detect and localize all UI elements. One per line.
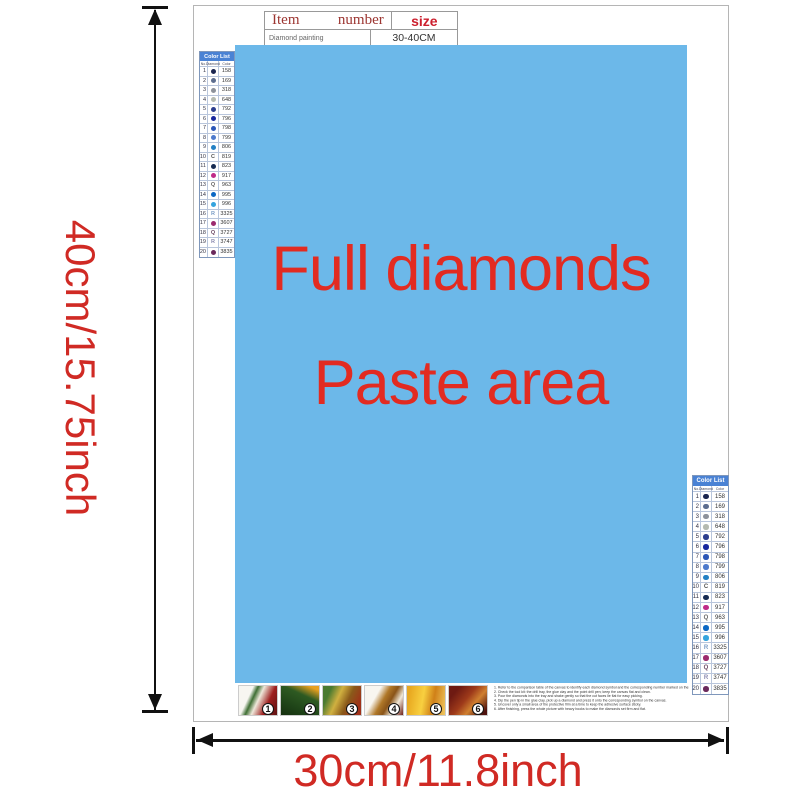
diamond-symbol-icon <box>208 134 219 143</box>
diamond-symbol-icon <box>208 200 219 209</box>
color-row-number: 3 <box>200 86 208 95</box>
dmc-color-code: 169 <box>712 504 728 510</box>
diamond-dot-icon <box>703 554 709 560</box>
color-list-row: 1158 <box>693 492 728 502</box>
diamond-symbol-icon <box>208 105 219 114</box>
step-image-2: 2 <box>280 685 320 716</box>
diamond-symbol-icon <box>701 522 712 531</box>
diamond-symbol-icon <box>208 248 219 258</box>
color-row-number: 7 <box>693 553 701 562</box>
color-list-row: 15996 <box>693 633 728 643</box>
color-row-number: 8 <box>200 134 208 143</box>
info-table-header-item-number: Item number <box>265 12 392 29</box>
diamond-symbol-icon <box>701 623 712 632</box>
color-list-right: Color List No. Diamond Color 11582169331… <box>692 475 729 695</box>
color-list-row: 10C819 <box>200 153 234 163</box>
arrow-up-icon <box>148 9 162 25</box>
color-row-number: 9 <box>200 143 208 152</box>
step-image-1: 1 <box>238 685 278 716</box>
dmc-color-code: 3607 <box>219 220 234 226</box>
color-row-number: 6 <box>693 542 701 551</box>
color-list-row: 15996 <box>200 200 234 210</box>
color-list-row: 173607 <box>200 219 234 229</box>
color-row-number: 20 <box>200 248 208 258</box>
diamond-symbol-icon <box>208 124 219 133</box>
step-image-4: 4 <box>364 685 404 716</box>
dmc-color-code: 823 <box>219 163 234 169</box>
color-row-number: 10 <box>200 153 208 162</box>
diamond-symbol-icon: C <box>701 583 712 592</box>
dmc-color-code: 648 <box>712 524 728 530</box>
height-dimension-label: 40cm/15.75inch <box>56 220 104 517</box>
step-number-badge: 5 <box>430 703 442 715</box>
color-row-number: 17 <box>200 219 208 228</box>
diamond-dot-icon <box>211 97 216 102</box>
color-list-row: 5792 <box>693 532 728 542</box>
dmc-color-code: 917 <box>712 605 728 611</box>
color-list-row: 7798 <box>200 124 234 134</box>
col-color-label: Color <box>712 486 728 491</box>
diamond-dot-icon <box>703 625 709 631</box>
color-row-number: 1 <box>200 67 208 76</box>
color-row-number: 19 <box>693 674 701 683</box>
diamond-symbol-icon <box>701 512 712 521</box>
diamond-dot-icon <box>703 595 709 601</box>
color-row-number: 2 <box>200 77 208 86</box>
diamond-dot-icon <box>211 192 216 197</box>
diamond-symbol-icon <box>208 77 219 86</box>
color-row-number: 19 <box>200 238 208 247</box>
color-row-number: 4 <box>200 96 208 105</box>
color-list-row: 19R3747 <box>200 238 234 248</box>
dmc-color-code: 799 <box>712 564 728 570</box>
horizontal-dimension-line <box>196 739 724 742</box>
color-list-row: 14995 <box>693 623 728 633</box>
full-diamond-paste-area: Full diamonds Paste area <box>235 45 687 683</box>
color-row-number: 18 <box>693 664 701 673</box>
color-row-number: 5 <box>200 105 208 114</box>
diamond-dot-icon <box>211 116 216 121</box>
color-list-row: 2169 <box>200 77 234 87</box>
diamond-symbol-icon <box>701 553 712 562</box>
diamond-symbol-icon: R <box>701 674 712 683</box>
arrow-down-icon <box>148 694 162 710</box>
dmc-color-code: 996 <box>219 201 234 207</box>
color-row-number: 6 <box>200 115 208 124</box>
diamond-dot-icon <box>703 575 709 581</box>
diamond-dot-icon <box>211 250 216 255</box>
diamond-dot-icon <box>211 88 216 93</box>
paste-area-text-line2: Paste area <box>235 347 687 419</box>
diamond-symbol-icon: Q <box>208 229 219 238</box>
diamond-symbol-icon: Q <box>701 613 712 622</box>
color-list-row: 6796 <box>200 115 234 125</box>
diamond-dot-icon <box>703 524 709 530</box>
color-list-row: 18Q3727 <box>693 664 728 674</box>
dmc-color-code: 3747 <box>219 239 234 245</box>
color-list-row: 9806 <box>693 573 728 583</box>
dmc-color-code: 796 <box>712 544 728 550</box>
diamond-symbol-icon <box>701 502 712 511</box>
color-list-title: Color List <box>200 52 234 61</box>
diamond-symbol-icon <box>208 143 219 152</box>
color-list-row: 8799 <box>200 134 234 144</box>
horizontal-dimension-left-cap <box>192 727 195 754</box>
diamond-dot-icon <box>703 514 709 520</box>
diamond-dot-icon <box>703 635 709 641</box>
dmc-color-code: 3325 <box>219 211 234 217</box>
header-number-label: number <box>338 12 384 29</box>
step-image-3: 3 <box>322 685 362 716</box>
color-row-number: 5 <box>693 532 701 541</box>
dmc-color-code: 648 <box>219 97 234 103</box>
diamond-dot-icon <box>703 605 709 611</box>
col-diamond-label: Diamond <box>208 61 219 66</box>
step-number-badge: 6 <box>472 703 484 715</box>
paste-area-text-line1: Full diamonds <box>235 233 687 305</box>
color-list-left: Color List No. Diamond Color 11582169331… <box>199 51 235 258</box>
info-table-header-row: Item number size <box>265 12 457 30</box>
dmc-color-code: 3727 <box>219 230 234 236</box>
color-list-row: 203835 <box>200 248 234 258</box>
color-row-number: 9 <box>693 573 701 582</box>
color-row-number: 4 <box>693 522 701 531</box>
instruction-step-thumbnails: 123456 <box>238 685 488 716</box>
color-row-number: 2 <box>693 502 701 511</box>
diamond-dot-icon <box>211 126 216 131</box>
diamond-symbol-icon <box>208 162 219 171</box>
color-row-number: 20 <box>693 684 701 694</box>
diamond-symbol-icon: R <box>208 238 219 247</box>
color-list-row: 16R3325 <box>693 643 728 653</box>
diamond-symbol-icon <box>208 115 219 124</box>
color-list-row: 10C819 <box>693 583 728 593</box>
color-row-number: 11 <box>693 593 701 602</box>
color-list-row: 13Q963 <box>200 181 234 191</box>
diamond-dot-icon <box>211 221 216 226</box>
dmc-color-code: 995 <box>219 192 234 198</box>
diamond-dot-icon <box>211 173 216 178</box>
diamond-dot-icon <box>703 544 709 550</box>
color-list-row: 1158 <box>200 67 234 77</box>
dmc-color-code: 792 <box>219 106 234 112</box>
color-list-rows: 11582169331846485792679677988799980610C8… <box>200 67 234 257</box>
color-row-number: 14 <box>200 191 208 200</box>
dmc-color-code: 3325 <box>712 645 728 651</box>
color-list-row: 203835 <box>693 684 728 694</box>
color-row-number: 13 <box>200 181 208 190</box>
color-list-row: 18Q3727 <box>200 229 234 239</box>
dmc-color-code: 158 <box>712 494 728 500</box>
color-list-row: 4648 <box>693 522 728 532</box>
diamond-symbol-icon <box>701 492 712 501</box>
color-list-row: 11823 <box>693 593 728 603</box>
size-value: 30-40CM <box>371 30 457 46</box>
color-row-number: 15 <box>693 633 701 642</box>
diamond-symbol-icon <box>701 654 712 663</box>
color-row-number: 15 <box>200 200 208 209</box>
color-list-row: 173607 <box>693 654 728 664</box>
color-row-number: 8 <box>693 563 701 572</box>
dmc-color-code: 806 <box>712 574 728 580</box>
color-list-row: 3318 <box>200 86 234 96</box>
step-image-5: 5 <box>406 685 446 716</box>
header-item-label: Item <box>272 12 300 29</box>
dmc-color-code: 318 <box>219 87 234 93</box>
color-list-rows: 11582169331846485792679677988799980610C8… <box>693 492 728 694</box>
diamond-symbol-icon <box>701 542 712 551</box>
canvas-sheet: Item number size Diamond painting 30-40C… <box>193 5 729 722</box>
color-row-number: 3 <box>693 512 701 521</box>
diamond-symbol-icon <box>701 593 712 602</box>
color-list-title: Color List <box>693 476 728 486</box>
dmc-color-code: 792 <box>712 534 728 540</box>
color-list-row: 11823 <box>200 162 234 172</box>
dmc-color-code: 796 <box>219 116 234 122</box>
dmc-color-code: 995 <box>712 625 728 631</box>
dmc-color-code: 3835 <box>219 249 234 255</box>
vertical-dimension-line <box>154 10 156 710</box>
dmc-color-code: 819 <box>219 154 234 160</box>
diamond-symbol-icon: R <box>701 643 712 652</box>
color-list-row: 13Q963 <box>693 613 728 623</box>
color-list-row: 7798 <box>693 553 728 563</box>
dmc-color-code: 158 <box>219 68 234 74</box>
color-row-number: 10 <box>693 583 701 592</box>
diamond-dot-icon <box>211 107 216 112</box>
dmc-color-code: 823 <box>712 594 728 600</box>
instruction-line: 6. After finishing, press the whole pict… <box>494 707 689 711</box>
color-row-number: 7 <box>200 124 208 133</box>
dmc-color-code: 3607 <box>712 655 728 661</box>
diamond-dot-icon <box>211 135 216 140</box>
diamond-dot-icon <box>211 78 216 83</box>
dmc-color-code: 996 <box>712 635 728 641</box>
color-row-number: 18 <box>200 229 208 238</box>
diamond-symbol-icon: Q <box>208 181 219 190</box>
step-number-badge: 3 <box>346 703 358 715</box>
step-number-badge: 1 <box>262 703 274 715</box>
diamond-symbol-icon <box>701 573 712 582</box>
color-row-number: 1 <box>693 492 701 501</box>
dmc-color-code: 169 <box>219 78 234 84</box>
instruction-text-block: 1. Refer to the comparison table of the … <box>494 686 689 712</box>
width-dimension-label: 30cm/11.8inch <box>293 745 582 797</box>
diamond-dot-icon <box>703 504 709 510</box>
dmc-color-code: 963 <box>219 182 234 188</box>
color-row-number: 17 <box>693 654 701 663</box>
color-list-row: 4648 <box>200 96 234 106</box>
color-list-row: 9806 <box>200 143 234 153</box>
diamond-symbol-icon <box>208 67 219 76</box>
vertical-dimension-bottom-cap <box>142 710 168 713</box>
color-row-number: 16 <box>693 643 701 652</box>
diamond-symbol-icon <box>701 633 712 642</box>
diamond-symbol-icon <box>701 603 712 612</box>
diamond-symbol-icon <box>208 86 219 95</box>
diamond-dot-icon <box>703 564 709 570</box>
color-row-number: 12 <box>693 603 701 612</box>
color-list-row: 19R3747 <box>693 674 728 684</box>
color-list-row: 5792 <box>200 105 234 115</box>
step-number-badge: 4 <box>388 703 400 715</box>
diamond-symbol-icon <box>701 684 712 694</box>
diamond-symbol-icon <box>208 219 219 228</box>
diamond-symbol-icon <box>701 563 712 572</box>
color-list-row: 6796 <box>693 542 728 552</box>
dmc-color-code: 917 <box>219 173 234 179</box>
color-row-number: 14 <box>693 623 701 632</box>
diamond-symbol-icon: R <box>208 210 219 219</box>
color-list-row: 3318 <box>693 512 728 522</box>
color-list-row: 14995 <box>200 191 234 201</box>
diamond-symbol-icon: Q <box>701 664 712 673</box>
diamond-symbol-icon: C <box>208 153 219 162</box>
dmc-color-code: 3835 <box>712 686 728 692</box>
color-row-number: 11 <box>200 162 208 171</box>
diamond-symbol-icon <box>208 96 219 105</box>
diamond-dot-icon <box>703 534 709 540</box>
dmc-color-code: 798 <box>219 125 234 131</box>
dmc-color-code: 3747 <box>712 675 728 681</box>
arrow-right-icon <box>708 733 724 747</box>
step-number-badge: 2 <box>304 703 316 715</box>
diamond-dot-icon <box>211 145 216 150</box>
diamond-symbol-icon <box>701 532 712 541</box>
info-table-data-row: Diamond painting 30-40CM <box>265 30 457 46</box>
header-size-label: size <box>392 12 457 29</box>
color-list-row: 12917 <box>200 172 234 182</box>
color-list-row: 8799 <box>693 563 728 573</box>
color-list-row: 12917 <box>693 603 728 613</box>
dmc-color-code: 963 <box>712 615 728 621</box>
dmc-color-code: 318 <box>712 514 728 520</box>
col-diamond-label: Diamond <box>701 486 712 491</box>
item-info-table: Item number size Diamond painting 30-40C… <box>264 11 458 47</box>
diamond-dot-icon <box>703 686 709 692</box>
color-list-row: 2169 <box>693 502 728 512</box>
dmc-color-code: 806 <box>219 144 234 150</box>
col-color-label: Color <box>219 61 234 66</box>
dmc-color-code: 798 <box>712 554 728 560</box>
color-list-row: 16R3325 <box>200 210 234 220</box>
diamond-symbol-icon <box>208 172 219 181</box>
diamond-dot-icon <box>703 494 709 500</box>
color-row-number: 12 <box>200 172 208 181</box>
arrow-left-icon <box>197 733 213 747</box>
dmc-color-code: 819 <box>712 584 728 590</box>
color-row-number: 13 <box>693 613 701 622</box>
dmc-color-code: 3727 <box>712 665 728 671</box>
item-name-value: Diamond painting <box>265 30 371 46</box>
horizontal-dimension-right-cap <box>726 727 729 754</box>
diamond-symbol-icon <box>208 191 219 200</box>
diamond-dot-icon <box>211 164 216 169</box>
color-row-number: 16 <box>200 210 208 219</box>
dmc-color-code: 799 <box>219 135 234 141</box>
diamond-dot-icon <box>703 655 709 661</box>
diamond-dot-icon <box>211 69 216 74</box>
step-image-6: 6 <box>448 685 488 716</box>
diamond-dot-icon <box>211 202 216 207</box>
